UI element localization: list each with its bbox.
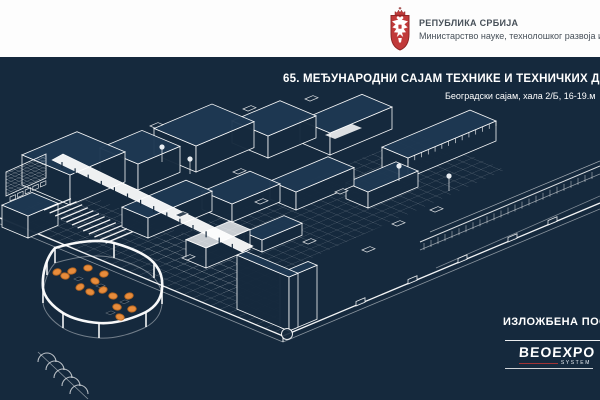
republic-name: РЕПУБЛИКА СРБИЈА xyxy=(419,18,600,28)
spiral-stair xyxy=(38,352,88,399)
ministry-name: Министарство науке, технолошког развоја … xyxy=(419,31,600,41)
slide-canvas: РЕПУБЛИКА СРБИЈА Министарство науке, тех… xyxy=(0,0,600,400)
divider-line-top xyxy=(505,340,600,341)
serbia-coat-of-arms-icon xyxy=(387,6,413,52)
logo-red-underline xyxy=(519,363,558,364)
beoexpo-logo-subtext: SYSTEM xyxy=(561,360,591,366)
ministry-header-bar: РЕПУБЛИКА СРБИЈА Министарство науке, тех… xyxy=(0,0,600,57)
beoexpo-logo-text: BEOEXPO xyxy=(519,345,592,359)
page-title: 65. МЕЂУНАРОДНИ САЈАМ ТЕХНИКЕ И ТЕХНИЧКИ… xyxy=(283,73,600,85)
page-subtitle: Београдски сајам, хала 2/Б, 16-19.м xyxy=(445,91,595,101)
beoexpo-logo: BEOEXPO SYSTEM xyxy=(519,345,591,366)
exhibit-setup-label: ИЗЛОЖБЕНА ПОСТ xyxy=(503,316,600,328)
divider-line-bottom xyxy=(505,368,593,369)
ministry-identity: РЕПУБЛИКА СРБИЈА Министарство науке, тех… xyxy=(387,6,600,52)
